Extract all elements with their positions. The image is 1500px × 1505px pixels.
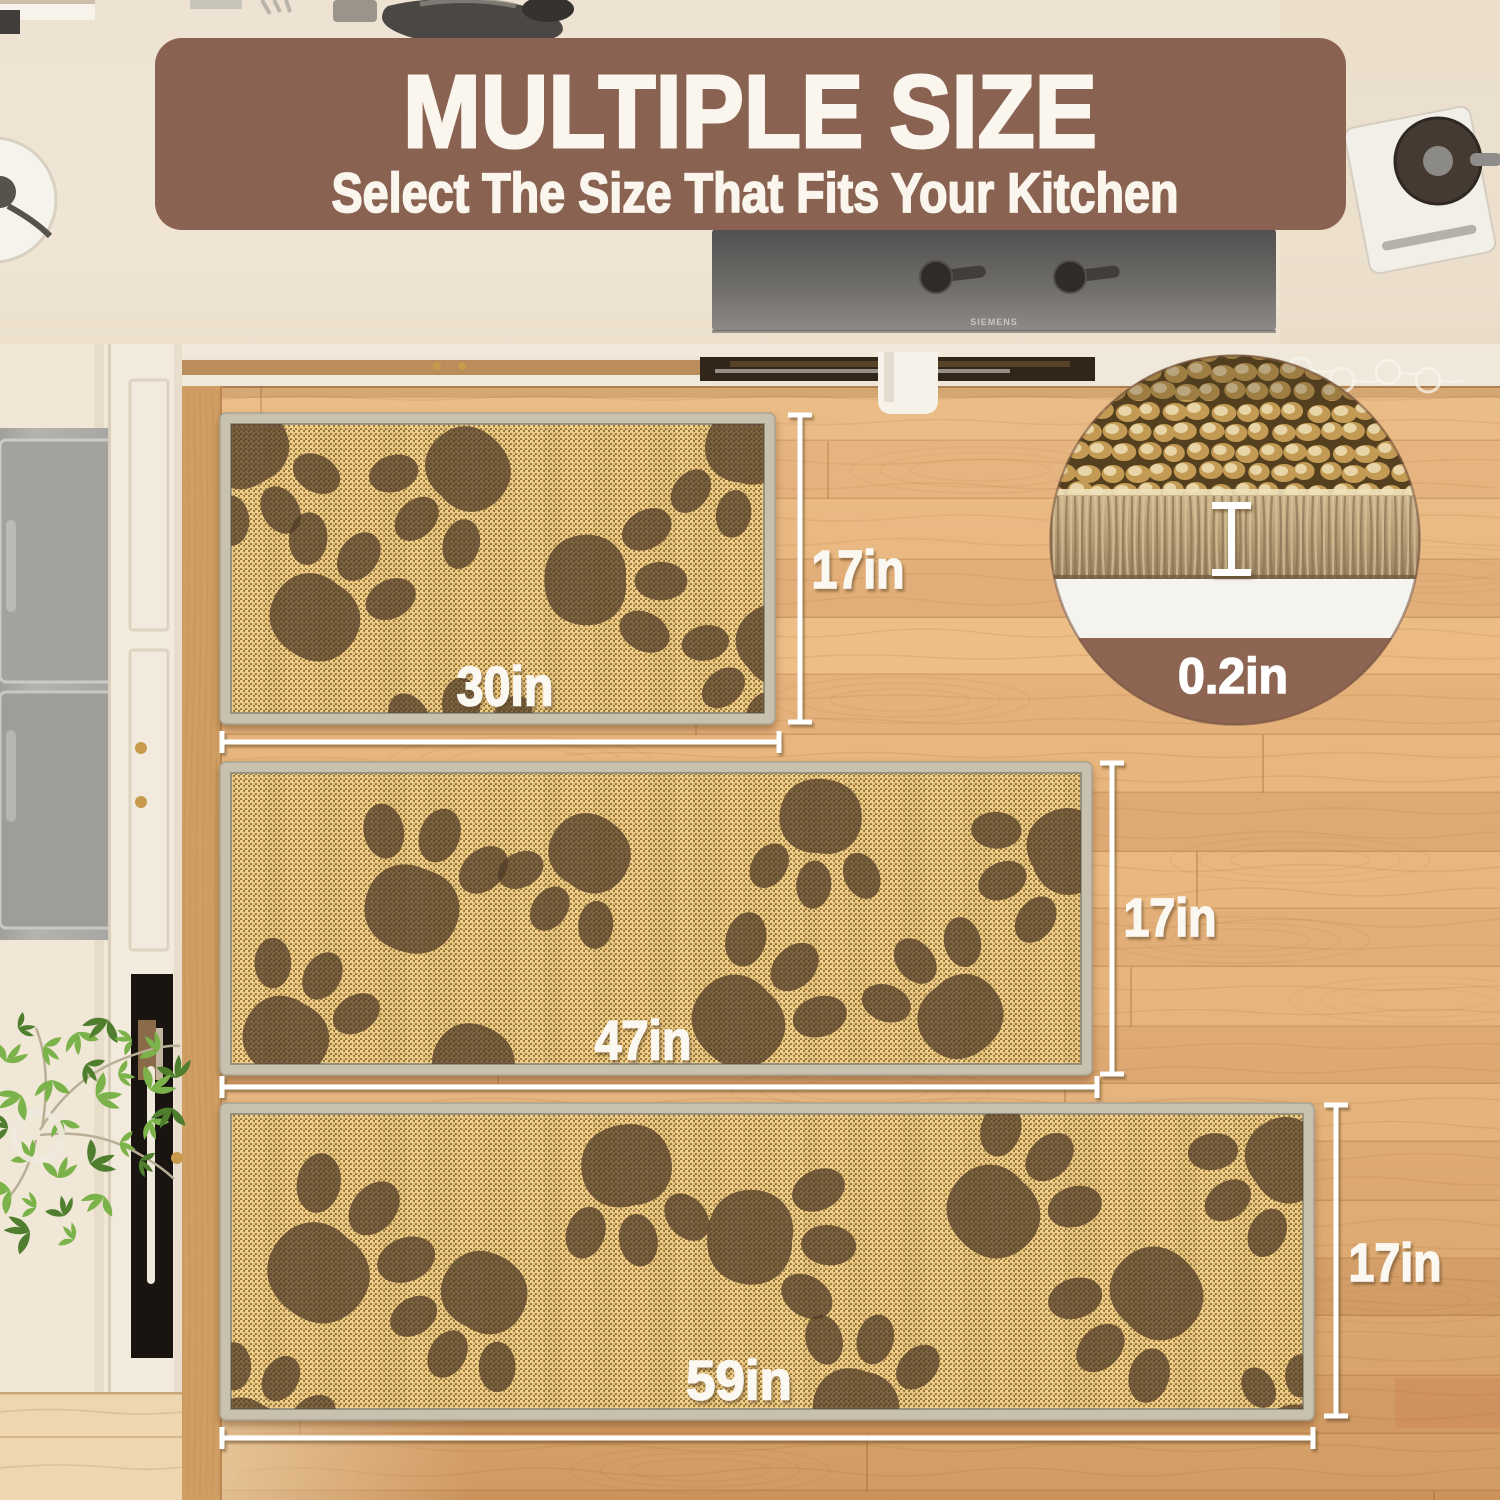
- svg-text:59in: 59in: [686, 1349, 792, 1412]
- svg-text:47in: 47in: [595, 1009, 692, 1072]
- svg-text:0.2in: 0.2in: [1178, 648, 1288, 704]
- svg-text:17in: 17in: [812, 540, 905, 600]
- svg-text:Select The Size That Fits Your: Select The Size That Fits Your Kitchen: [332, 161, 1179, 224]
- svg-text:30in: 30in: [457, 655, 554, 718]
- svg-text:SIEMENS: SIEMENS: [970, 317, 1018, 327]
- svg-text:17in: 17in: [1349, 1233, 1442, 1293]
- svg-text:17in: 17in: [1124, 888, 1217, 948]
- svg-text:MULTIPLE SIZE: MULTIPLE SIZE: [403, 54, 1097, 169]
